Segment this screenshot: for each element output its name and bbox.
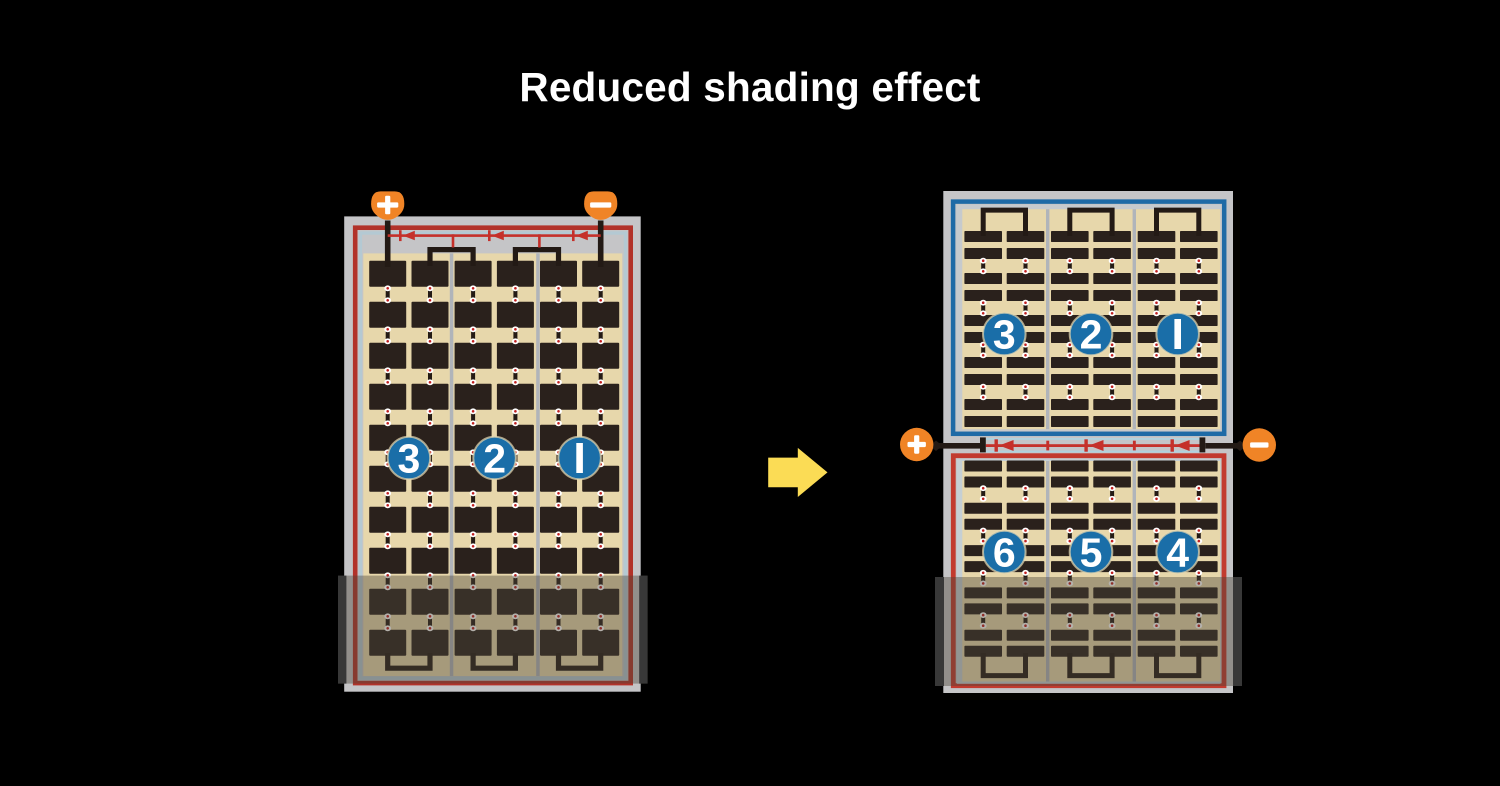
svg-text:2: 2 — [483, 436, 506, 482]
svg-text:2: 2 — [1080, 312, 1103, 358]
svg-text:3: 3 — [397, 436, 420, 482]
svg-text:6: 6 — [993, 530, 1016, 576]
svg-text:4: 4 — [1166, 530, 1189, 576]
svg-text:5: 5 — [1080, 530, 1103, 576]
svg-text:3: 3 — [993, 312, 1016, 358]
svg-text:Reduced shading effect: Reduced shading effect — [519, 64, 980, 110]
